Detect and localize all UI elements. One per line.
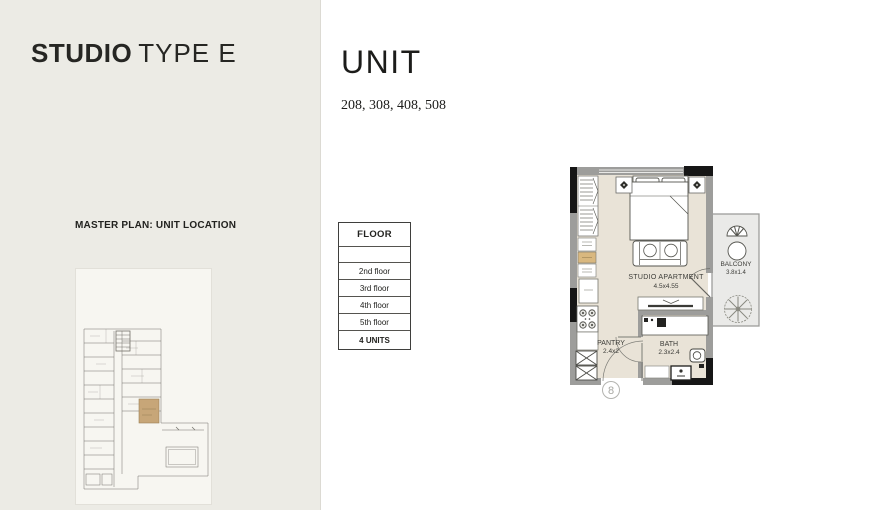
sofa-cushion [665,244,678,257]
main-content: UNIT 208, 308, 408, 508 FLOOR 2nd floor … [321,0,880,510]
stove [577,306,598,332]
shower-tray [645,366,669,378]
bath-vanity [642,316,708,335]
studio-room-label: STUDIO APARTMENT [628,274,704,281]
cabinet [578,264,596,277]
unit-number-circle: 8 [603,382,620,399]
nightstand [616,177,632,193]
floor-table-row: 2nd floor [339,263,410,280]
unit-title: UNIT [341,44,422,81]
floor-table-row: 5th floor [339,314,410,331]
sofa-cushion [644,244,657,257]
tv-console [638,297,703,310]
sofa [633,241,687,266]
highlighted-unit [139,399,159,423]
bath-dims: 2.3x2.4 [658,349,680,356]
master-plan-drawing [76,269,211,504]
studio-room-dims: 4.5x4.55 [654,283,679,290]
master-plan-panel [75,268,212,505]
wardrobe [578,176,598,236]
unit-number-text: 8 [608,385,614,397]
fridge [579,279,598,303]
balcony-table [728,242,746,260]
floor-table: FLOOR 2nd floor 3rd floor 4th floor 5th … [338,222,411,350]
kitchen-counter [577,332,598,350]
floor-table-empty-row [339,247,410,263]
bath-label: BATH [660,341,678,348]
washing-machine [578,238,596,251]
unit-floor-plan-drawing: STUDIO APARTMENT 4.5x4.55 BALCONY 3.8x1.… [556,150,786,410]
unit-floor-plan: STUDIO APARTMENT 4.5x4.55 BALCONY 3.8x1.… [556,150,786,410]
floor-table-row: 4th floor [339,297,410,314]
bed [630,176,688,240]
appliance-column [578,238,598,303]
pantry-dims: 2.4x2 [603,348,619,355]
unit-numbers: 208, 308, 408, 508 [341,98,446,114]
nightstand [689,177,705,193]
page-title-light: TYPE E [138,38,236,68]
master-plan-label: MASTER PLAN: UNIT LOCATION [75,220,236,231]
page: STUDIOTYPE E MASTER PLAN: UNIT LOCATION [0,0,880,510]
floor-table-row: 3rd floor [339,280,410,297]
balcony-label: BALCONY [720,261,752,268]
page-title-bold: STUDIO [31,38,132,68]
floor-table-footer: 4 UNITS [339,331,410,349]
sidebar: STUDIOTYPE E MASTER PLAN: UNIT LOCATION [0,0,321,510]
floor-table-header: FLOOR [339,223,410,247]
page-title: STUDIOTYPE E [31,38,237,69]
balcony-dims: 3.8x1.4 [726,270,746,276]
basin [671,366,691,380]
pantry-label: PANTRY [597,340,625,347]
